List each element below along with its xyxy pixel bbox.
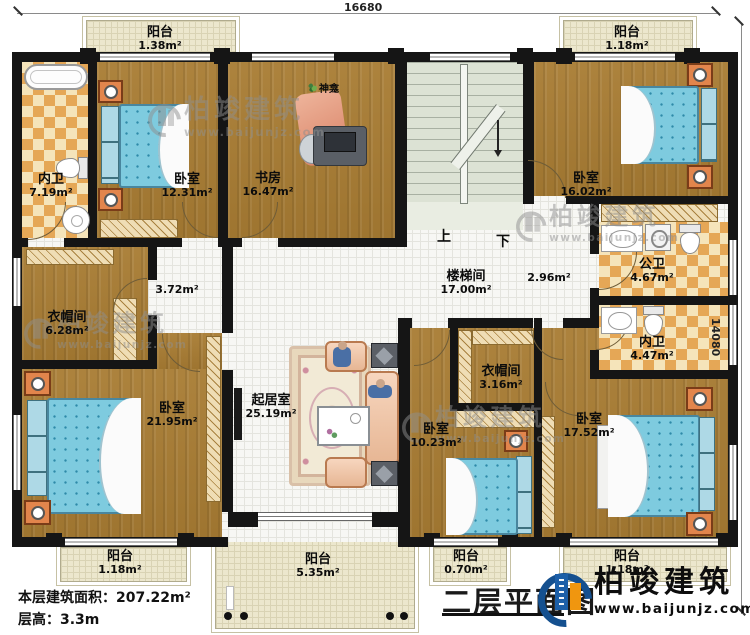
room-label: 阳台1.38m² [138,26,181,52]
wall [590,350,599,379]
drain-dot [240,612,248,620]
dimension-tick [734,16,744,26]
room-label: 衣帽间3.16m² [479,365,522,391]
wall [590,196,599,254]
room-label: 阳台1.18m² [98,550,141,576]
headboard-cabinet [101,106,119,184]
window [13,415,21,490]
floor-plan: 16680 14080 [0,0,750,635]
room-label: 卧室10.23m² [410,423,461,449]
nightstand [24,371,51,396]
toilet [640,306,667,336]
wall [395,52,407,247]
nightstand [504,430,528,452]
room-label: 卧室17.52m² [563,413,614,439]
room-label: 起居室25.19m² [245,394,296,420]
brand-logo-icon [538,568,588,622]
drain-dot [400,612,408,620]
window [729,305,737,365]
wall [278,238,398,247]
sink [62,206,90,234]
wardrobe [541,416,555,528]
wall [12,360,152,369]
room-label: 内卫7.19m² [29,173,72,199]
wall [599,370,728,379]
wall [590,288,599,318]
window [434,538,498,546]
window [430,53,510,61]
pillar [388,48,404,64]
armchair [325,457,367,488]
pillar [214,48,230,64]
window [729,240,737,295]
corridor-area: 3.72m² [155,283,198,296]
pillar [178,533,194,547]
headboard-cabinet [516,456,532,534]
window [100,53,210,61]
pillar [502,533,518,547]
dimension-line-right [741,24,742,614]
corridor-area: 2.96m² [527,271,570,284]
stairs-down-label: 下 [496,231,510,251]
room-label: 阳台1.18m² [605,26,648,52]
nightstand [687,63,713,87]
bathtub [24,64,88,90]
headboard-cabinet [699,417,715,511]
shrine-label: 神龛 [308,80,339,95]
dimension-width: 16680 [344,1,382,14]
room-label: 卧室12.31m² [161,173,212,199]
wardrobe [455,410,535,428]
bed [47,398,141,514]
wardrobe [26,249,114,265]
headboard-cabinet [27,400,47,496]
nightstand [687,165,713,189]
wardrobe [458,330,472,405]
wall [148,238,157,280]
person-figure [368,385,392,398]
dimension-tick [711,6,721,16]
nightstand [686,387,713,411]
stair-direction-arrow [497,120,499,154]
pillar [556,48,572,64]
wall [450,328,458,408]
brand-logo: 柏竣建筑 www.baijunjz.com [538,568,750,622]
bed [446,458,518,535]
wall [218,52,228,247]
drain-dot [386,612,394,620]
dimension-height: 14080 [709,318,722,356]
bed [621,86,699,164]
sink-counter [601,225,643,252]
wardrobe [206,336,221,502]
drain-dot [224,612,232,620]
window [252,53,334,61]
wall [12,238,28,247]
room-label: 阳台5.35m² [296,553,339,579]
nightstand [98,80,123,103]
sink-counter [601,307,637,334]
coffee-table [317,406,370,446]
window [13,258,21,306]
room-label: 内卫4.47m² [630,336,673,362]
room-label: 衣帽间6.28m² [45,311,88,337]
room-label: 楼梯间17.00m² [440,270,491,296]
room-label: 书房16.47m² [242,172,293,198]
nightstand [24,500,51,525]
bed [608,415,700,517]
window [570,538,718,546]
tv [234,388,242,440]
nightstand [686,512,713,536]
floor-area-note: 本层建筑面积：207.22m² [18,587,191,607]
sliding-door [258,512,372,521]
balcony-post [226,586,234,610]
stair-landing [407,202,523,230]
pillar [517,48,533,64]
wardrobe [472,330,534,345]
flower-icon [308,83,317,92]
toilet [676,224,704,254]
room-label: 阳台0.70m² [444,550,487,576]
window [65,538,177,546]
pillar [80,48,96,64]
headboard-cabinet [701,88,717,162]
washing-machine [645,224,671,251]
window [729,445,737,520]
wardrobe [100,219,178,238]
wall [599,296,728,305]
monitor [324,132,356,152]
room-label: 卧室16.02m² [560,172,611,198]
nightstand [98,188,123,211]
wall [222,245,233,333]
wall [450,403,542,411]
window [575,53,675,61]
dimension-tick [13,6,23,16]
pillar [46,533,62,547]
wardrobe [601,204,718,222]
end-table [371,461,398,486]
room-label: 公卫4.67m² [630,258,673,284]
floor-height-note: 层高：3.3m [18,609,99,629]
wall [398,318,410,547]
stair-stringer [460,64,468,204]
wall [222,370,233,512]
wall [563,318,599,328]
person-figure [333,347,351,367]
brand-url: www.baijunjz.com [594,601,750,617]
end-table [371,343,398,368]
pillar [684,48,700,64]
room-label: 卧室21.95m² [146,402,197,428]
pillar [716,533,732,547]
shrine-text: 神龛 [319,80,339,95]
wall [534,413,542,537]
wall [228,512,258,527]
wall [448,318,533,328]
brand-name: 柏竣建筑 [594,568,750,598]
wall [64,238,182,247]
stairs-up-label: 上 [437,226,451,246]
